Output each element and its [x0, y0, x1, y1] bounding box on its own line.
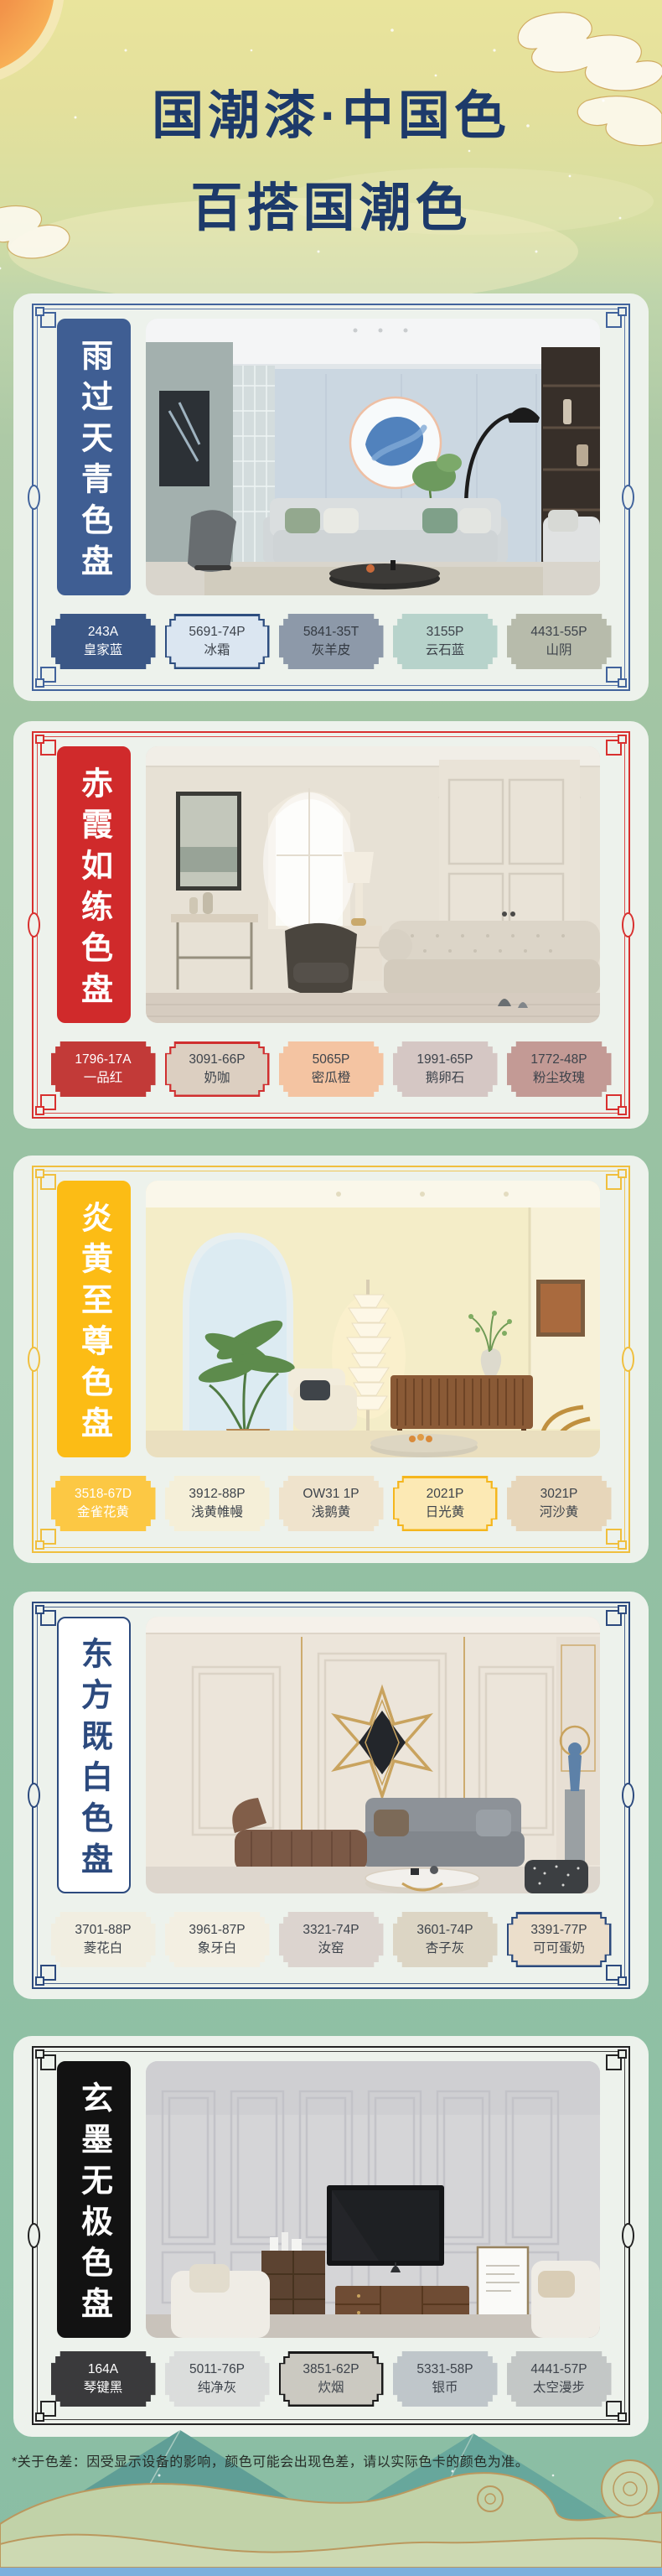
swatch-name: 鹅卵石: [426, 1071, 465, 1087]
color-swatch: 243A 皇家蓝: [51, 614, 156, 669]
palette-card-white: 东方既白色盘: [13, 1592, 649, 1999]
page-title-line1: 国潮漆·中国色: [0, 91, 662, 143]
color-swatch: 3155P 云石蓝: [393, 614, 498, 669]
swatch-name: 可可蛋奶: [533, 1941, 585, 1957]
swatch-code: 3701-88P: [75, 1923, 131, 1939]
swatch-face: 3155P 云石蓝: [395, 616, 495, 667]
side-ornament-icon: [622, 1347, 634, 1372]
color-swatch: 3321-74P 汝窑: [279, 1912, 384, 1967]
wave-footer-decoration: [0, 2425, 662, 2568]
color-swatch: OW31 1P 浅鹅黄: [279, 1476, 384, 1531]
swatch-code: 1796-17A: [75, 1052, 131, 1068]
color-swatch: 1991-65P 鹅卵石: [393, 1041, 498, 1097]
swatch-face: 3912-88P 浅黄帷幔: [167, 1478, 267, 1529]
swatch-code: 4441-57P: [530, 2362, 587, 2378]
color-disclaimer: *关于色差：因受显示设备的影响，颜色可能会出现色差，请以实际色卡的颜色为准。: [12, 2450, 529, 2470]
swatch-face: 3391-77P 可可蛋奶: [509, 1914, 609, 1966]
palette-card-black: 玄墨无极色盘: [13, 2036, 649, 2437]
corner-ornament-icon: [40, 1174, 56, 1190]
corner-ornament-icon: [40, 1610, 56, 1626]
side-ornament-icon: [28, 485, 40, 510]
color-swatch: 5065P 密瓜橙: [279, 1041, 384, 1097]
color-swatch: 3518-67D 金雀花黄: [51, 1476, 156, 1531]
swatch-face: 5065P 密瓜橙: [281, 1044, 381, 1095]
palette-card-rain-blue: 雨过天青色盘: [13, 293, 649, 701]
sun-icon: [0, 0, 54, 75]
swatch-name: 纯净灰: [198, 2381, 237, 2397]
swatch-name: 日光黄: [426, 1505, 465, 1521]
swatch-face: 3021P 河沙黄: [509, 1478, 609, 1529]
side-ornament-icon: [622, 2223, 634, 2248]
poster-page: 国潮漆·中国色 百搭国潮色 雨过天青色盘: [0, 0, 662, 2576]
swatch-name: 汝窑: [318, 1941, 344, 1957]
swatch-face: 5841-35T 灰羊皮: [281, 616, 381, 667]
swatch-face: 3961-87P 象牙白: [167, 1914, 267, 1966]
color-swatch: 1772-48P 粉尘玫瑰: [507, 1041, 612, 1097]
side-ornament-icon: [28, 912, 40, 937]
swatch-code: 3091-66P: [189, 1052, 245, 1068]
side-ornament-icon: [28, 1347, 40, 1372]
color-swatch: 1796-17A 一品红: [51, 1041, 156, 1097]
page-title-line2: 百搭国潮色: [0, 183, 662, 235]
color-swatch: 5841-35T 灰羊皮: [279, 614, 384, 669]
swatch-name: 山阴: [546, 643, 571, 659]
side-ornament-icon: [622, 485, 634, 510]
swatch-row: 3701-88P 菱花白 3961-87P 象牙白 3321-74P 汝窑: [34, 1912, 628, 1967]
swatch-name: 一品红: [84, 1071, 123, 1087]
swatch-face: 1991-65P 鹅卵石: [395, 1044, 495, 1095]
swatch-code: 5841-35T: [303, 625, 359, 641]
swatch-code: 3912-88P: [189, 1487, 245, 1503]
room-photo-cream-paneled: [146, 1617, 600, 1893]
swatch-code: 5331-58P: [416, 2362, 473, 2378]
corner-ornament-icon: [40, 740, 56, 756]
swatch-name: 琴键黑: [84, 2381, 123, 2397]
corner-ornament-icon: [606, 1174, 622, 1190]
swatch-name: 皇家蓝: [84, 643, 123, 659]
swatch-code: 3021P: [540, 1487, 578, 1503]
palette-banner: 炎黄至尊色盘: [57, 1181, 131, 1457]
color-swatch: 5691-74P 冰霜: [165, 614, 270, 669]
swatch-face: 243A 皇家蓝: [53, 616, 153, 667]
swatch-code: 5065P: [313, 1052, 350, 1068]
swatch-face: 1772-48P 粉尘玫瑰: [509, 1044, 609, 1095]
swatch-face: 5691-74P 冰霜: [167, 616, 267, 667]
color-swatch: 2021P 日光黄: [393, 1476, 498, 1531]
swatch-name: 云石蓝: [426, 643, 465, 659]
color-swatch: 5011-76P 纯净灰: [165, 2351, 270, 2407]
card-frame: 炎黄至尊色盘: [32, 1166, 630, 1553]
swatch-code: 1772-48P: [530, 1052, 587, 1068]
header-decoration: [0, 0, 662, 302]
swatch-name: 浅黄帷幔: [191, 1505, 243, 1521]
color-swatch: 3601-74P 杏子灰: [393, 1912, 498, 1967]
swatch-code: OW31 1P: [303, 1487, 359, 1503]
swatch-code: 3961-87P: [189, 1923, 245, 1939]
color-swatch: 3021P 河沙黄: [507, 1476, 612, 1531]
color-swatch: 4431-55P 山阴: [507, 614, 612, 669]
card-frame: 东方既白色盘: [32, 1602, 630, 1989]
swatch-name: 灰羊皮: [312, 643, 351, 659]
palette-banner: 东方既白色盘: [57, 1617, 131, 1893]
swatch-face: 5331-58P 银币: [395, 2354, 495, 2405]
room-photo-cream-classic: [146, 746, 600, 1023]
swatch-name: 杏子灰: [426, 1941, 465, 1957]
swatch-row: 3518-67D 金雀花黄 3912-88P 浅黄帷幔 OW31 1P 浅鹅黄: [34, 1476, 628, 1531]
swatch-name: 粉尘玫瑰: [533, 1071, 585, 1087]
swatch-face: 3701-88P 菱花白: [53, 1914, 153, 1966]
swatch-name: 银币: [432, 2381, 458, 2397]
swatch-code: 2021P: [427, 1487, 464, 1503]
palette-banner: 玄墨无极色盘: [57, 2061, 131, 2338]
room-photo-pale-yellow: [146, 1181, 600, 1457]
color-swatch: 3701-88P 菱花白: [51, 1912, 156, 1967]
color-swatch: 5331-58P 银币: [393, 2351, 498, 2407]
bottom-accent-bar: [0, 2568, 662, 2576]
swatch-face: 3321-74P 汝窑: [281, 1914, 381, 1966]
swatch-code: 3601-74P: [416, 1923, 473, 1939]
corner-ornament-icon: [606, 1610, 622, 1626]
side-ornament-icon: [622, 912, 634, 937]
swatch-name: 冰霜: [204, 643, 230, 659]
swatch-row: 1796-17A 一品红 3091-66P 奶咖 5065P 密瓜橙: [34, 1041, 628, 1097]
corner-ornament-icon: [40, 312, 56, 328]
card-frame: 赤霞如练色盘: [32, 731, 630, 1119]
card-frame: 雨过天青色盘: [32, 304, 630, 691]
swatch-face: 4431-55P 山阴: [509, 616, 609, 667]
swatch-face: 2021P 日光黄: [395, 1478, 495, 1529]
swatch-code: 5691-74P: [189, 625, 245, 641]
swatch-code: 3155P: [427, 625, 464, 641]
swatch-code: 164A: [88, 2362, 118, 2378]
palette-banner: 赤霞如练色盘: [57, 746, 131, 1023]
swatch-face: 4441-57P 太空漫步: [509, 2354, 609, 2405]
side-ornament-icon: [28, 2223, 40, 2248]
swatch-code: 243A: [88, 625, 118, 641]
swatch-code: 3518-67D: [75, 1487, 132, 1503]
swatch-face: 1796-17A 一品红: [53, 1044, 153, 1095]
swatch-name: 河沙黄: [540, 1505, 579, 1521]
swatch-name: 浅鹅黄: [312, 1505, 351, 1521]
swatch-face: 164A 琴键黑: [53, 2354, 153, 2405]
palette-card-yellow: 炎黄至尊色盘: [13, 1156, 649, 1563]
swatch-name: 金雀花黄: [77, 1505, 129, 1521]
swatch-face: 3518-67D 金雀花黄: [53, 1478, 153, 1529]
corner-ornament-icon: [606, 740, 622, 756]
swatch-code: 1991-65P: [416, 1052, 473, 1068]
side-ornament-icon: [622, 1783, 634, 1808]
color-swatch: 3091-66P 奶咖: [165, 1041, 270, 1097]
corner-ornament-icon: [40, 2054, 56, 2070]
swatch-name: 奶咖: [204, 1071, 230, 1087]
swatch-code: 3391-77P: [530, 1923, 587, 1939]
swatch-code: 4431-55P: [530, 625, 587, 641]
color-swatch: 3851-62P 炊烟: [279, 2351, 384, 2407]
swatch-face: 3851-62P 炊烟: [281, 2354, 381, 2405]
room-photo-blue-livingroom: [146, 319, 600, 595]
palette-card-red-dawn: 赤霞如练色盘: [13, 721, 649, 1129]
color-swatch: 3961-87P 象牙白: [165, 1912, 270, 1967]
palette-banner: 雨过天青色盘: [57, 319, 131, 595]
swatch-row: 243A 皇家蓝 5691-74P 冰霜 5841-35T 灰羊皮: [34, 614, 628, 669]
swatch-face: 3091-66P 奶咖: [167, 1044, 267, 1095]
room-photo-gray-tv-wall: [146, 2061, 600, 2338]
color-swatch: 164A 琴键黑: [51, 2351, 156, 2407]
color-swatch: 3391-77P 可可蛋奶: [507, 1912, 612, 1967]
sun-halo-decoration: [0, 0, 65, 86]
color-swatch: 3912-88P 浅黄帷幔: [165, 1476, 270, 1531]
swatch-name: 密瓜橙: [312, 1071, 351, 1087]
swatch-name: 太空漫步: [533, 2381, 585, 2397]
swatch-face: OW31 1P 浅鹅黄: [281, 1478, 381, 1529]
swatch-face: 3601-74P 杏子灰: [395, 1914, 495, 1966]
swatch-name: 炊烟: [318, 2381, 344, 2397]
side-ornament-icon: [28, 1783, 40, 1808]
card-frame: 玄墨无极色盘: [32, 2046, 630, 2425]
corner-ornament-icon: [606, 312, 622, 328]
swatch-name: 象牙白: [198, 1941, 237, 1957]
color-swatch: 4441-57P 太空漫步: [507, 2351, 612, 2407]
swatch-name: 菱花白: [84, 1941, 123, 1957]
swatch-row: 164A 琴键黑 5011-76P 纯净灰 3851-62P 炊烟: [34, 2351, 628, 2407]
swatch-code: 5011-76P: [189, 2362, 245, 2378]
swatch-face: 5011-76P 纯净灰: [167, 2354, 267, 2405]
swatch-code: 3321-74P: [303, 1923, 359, 1939]
swatch-code: 3851-62P: [303, 2362, 359, 2378]
corner-ornament-icon: [606, 2054, 622, 2070]
